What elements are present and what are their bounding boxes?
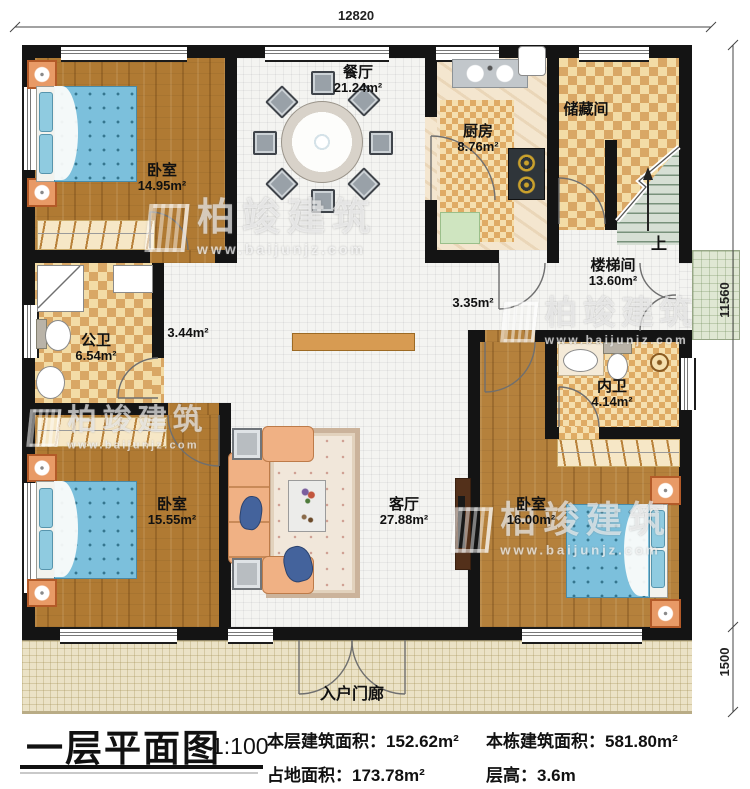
door-opening-stairhall-french <box>679 263 692 330</box>
side-table <box>232 428 262 460</box>
toilet <box>45 320 71 351</box>
room-name: 公卫 <box>75 332 116 349</box>
console-table <box>292 333 415 351</box>
room-label-bath-public: 公卫 6.54m² <box>75 332 116 364</box>
wardrobe-bedroom2 <box>37 417 167 447</box>
room-label-storage: 储藏间 <box>563 101 608 118</box>
pillow <box>651 510 665 548</box>
wall-kitchen-bottom-a <box>425 250 499 263</box>
wall-bedroom1-bottom-b <box>215 250 237 263</box>
room-name: 卧室 <box>138 162 186 179</box>
stairs-up-label: 上 <box>651 236 667 254</box>
stat-footprint-area: 占地面积：173.78m² <box>267 761 486 786</box>
wardrobe-bedroom3 <box>557 439 680 467</box>
nightstand <box>27 178 57 207</box>
wall-bedroom1-right <box>225 45 237 262</box>
refrigerator <box>518 46 546 76</box>
room-label-living: 客厅 27.88m² <box>380 496 428 528</box>
room-area: 14.95m² <box>138 179 186 194</box>
pillow <box>39 92 53 132</box>
floor-plan-page: 柏竣建筑 www.baijunjz.com 柏竣建筑 www.baijunjz.… <box>0 0 750 789</box>
bathroom-sink <box>563 349 598 372</box>
room-label-stairwell: 楼梯间 13.60m² <box>589 257 637 289</box>
room-name: 内卫 <box>591 378 632 395</box>
wall-storage-stairs-divider <box>605 140 617 230</box>
side-table <box>232 558 262 590</box>
stat-floor-height: 层高：3.6m <box>486 761 678 786</box>
wall-bedroom2-top <box>22 403 168 415</box>
wardrobe-bedroom1 <box>37 220 155 250</box>
room-name: 楼梯间 <box>589 257 637 274</box>
dining-table <box>281 101 363 183</box>
plan-title: 一层平面图 <box>26 718 221 772</box>
wall-bedroom3-top-b <box>535 330 557 342</box>
wall-bath-ensuite-bottom-b <box>599 427 679 439</box>
room-name: 入户门廊 <box>320 686 384 704</box>
stairs-up-text: 上 <box>651 236 667 254</box>
room-area: 21.24m² <box>334 81 382 96</box>
shower-fitting <box>650 353 669 372</box>
room-label-entry-porch: 入户门廊 <box>320 686 384 704</box>
room-area: 16.00m² <box>507 513 555 528</box>
nightstand <box>27 579 57 607</box>
corner-shower <box>37 265 84 312</box>
nightstand <box>650 476 681 505</box>
window-bedroom3-bottom <box>522 627 642 644</box>
nightstand <box>27 454 57 482</box>
pillow <box>651 550 665 588</box>
plan-stats: 本层建筑面积：152.62m² 本栋建筑面积：581.80m² 占地面积：173… <box>267 727 678 786</box>
room-label-bath-ensuite: 内卫 4.14m² <box>591 378 632 410</box>
door-opening-bedroom3 <box>485 330 535 342</box>
wall-stairhall-bottom <box>545 330 679 342</box>
kitchen-sink <box>452 59 528 88</box>
title-underline <box>20 765 263 769</box>
wall-bath-ensuite-bottom-a <box>545 427 559 439</box>
pillow <box>39 488 53 528</box>
wall-bath-ensuite-left <box>545 330 557 439</box>
door-opening-bath-ensuite <box>559 427 599 439</box>
wall-storage-bottom-b <box>605 218 617 230</box>
nightstand <box>650 599 681 628</box>
stove <box>508 148 545 200</box>
dining-chair <box>253 131 277 155</box>
room-label-bedroom-bottom-right: 卧室 16.00m² <box>507 496 555 528</box>
dimension-top: 12820 <box>338 8 374 23</box>
wall-bath-public-right <box>152 263 164 358</box>
room-name: 卧室 <box>148 496 196 513</box>
wall-bedroom1-bottom-a <box>22 250 150 263</box>
room-area: 6.54m² <box>75 349 116 364</box>
room-area: 27.88m² <box>380 513 428 528</box>
room-area: 3.44m² <box>167 326 208 341</box>
bathroom-sink <box>36 366 65 399</box>
dining-chair <box>369 131 393 155</box>
room-area: 13.60m² <box>589 274 637 289</box>
window-bedroom1-top <box>61 45 187 62</box>
room-label-kitchen: 厨房 8.76m² <box>457 123 498 155</box>
door-opening-kitchen <box>499 250 547 263</box>
wall-kitchen-storage-divider <box>547 45 559 263</box>
room-area: 4.14m² <box>591 395 632 410</box>
room-label-dining: 餐厅 21.24m² <box>334 64 382 96</box>
room-name: 厨房 <box>457 123 498 140</box>
room-name: 餐厅 <box>334 64 382 81</box>
room-area: 3.35m² <box>452 296 493 311</box>
room-area: 8.76m² <box>457 140 498 155</box>
kitchen-cabinet <box>440 212 480 244</box>
door-opening-bedroom2 <box>168 403 219 415</box>
door-opening-bedroom1 <box>150 250 215 263</box>
plan-scale: 1:100 <box>211 733 269 760</box>
tv <box>458 496 465 548</box>
opening-dining-kitchen <box>425 117 437 200</box>
door-opening-storage <box>559 218 605 230</box>
dimension-right-lower: 1500 <box>717 627 733 697</box>
wall-outer-right-upper <box>679 45 692 263</box>
area-label-hall-left: 3.44m² <box>167 326 208 341</box>
wall-bedroom3-top-a <box>468 330 485 342</box>
stat-building-area: 本栋建筑面积：581.80m² <box>486 727 678 752</box>
coffee-table <box>288 480 326 532</box>
nightstand <box>27 60 57 89</box>
door-opening-bath-public <box>152 358 164 403</box>
window-living-bottom <box>228 627 273 644</box>
window-bedroom2-bottom <box>60 627 177 644</box>
area-label-hall-right: 3.35m² <box>452 296 493 311</box>
room-name: 卧室 <box>507 496 555 513</box>
pillow <box>39 134 53 174</box>
stat-floor-area: 本层建筑面积：152.62m² <box>267 727 486 752</box>
room-name: 储藏间 <box>563 101 608 118</box>
toilet <box>607 353 628 380</box>
bath-basin-unit <box>113 265 153 293</box>
room-area: 15.55m² <box>148 513 196 528</box>
dimension-right-upper: 11560 <box>717 265 733 335</box>
room-label-bedroom-top-left: 卧室 14.95m² <box>138 162 186 194</box>
window-dining-top <box>265 45 389 62</box>
window-storage-top <box>579 45 649 62</box>
title-underline-light <box>20 772 258 774</box>
armchair-top <box>262 426 314 462</box>
dining-chair <box>311 71 335 95</box>
window-bath-ensuite-right <box>679 358 696 410</box>
room-name: 客厅 <box>380 496 428 513</box>
pillow <box>39 530 53 570</box>
wall-storage-bottom-a <box>547 218 559 230</box>
dining-chair <box>311 189 335 213</box>
room-label-bedroom-bottom-left: 卧室 15.55m² <box>148 496 196 528</box>
